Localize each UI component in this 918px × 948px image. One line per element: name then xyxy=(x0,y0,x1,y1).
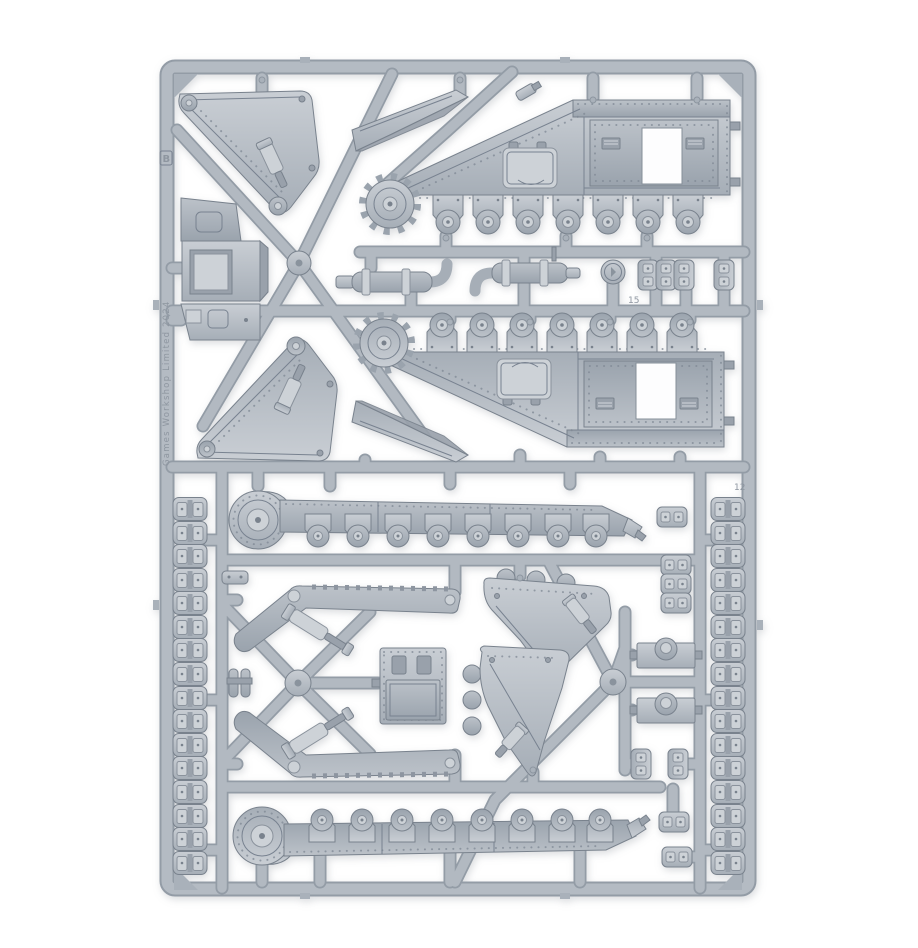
copyright-embossed: Games Workshop Limited 2024 xyxy=(162,300,172,466)
track-link-small xyxy=(656,260,676,290)
track-link-small xyxy=(714,260,734,290)
frame-letter: B xyxy=(163,154,171,165)
track-link-small xyxy=(659,812,689,832)
hull-section-box-lower xyxy=(181,304,260,340)
white-background xyxy=(0,0,918,948)
track-link-small xyxy=(674,260,694,290)
track-link-small xyxy=(661,574,691,594)
runner-number: 15 xyxy=(628,296,639,306)
track-link-small xyxy=(661,593,691,613)
small-bracket xyxy=(222,571,248,584)
track-link-small xyxy=(661,555,691,575)
track-link-small xyxy=(668,749,688,779)
sprue-photo: B Games Workshop Limited 2024 15 12 xyxy=(0,0,918,948)
track-link-small xyxy=(631,749,651,779)
frame-number: 12 xyxy=(734,483,745,493)
hatch-panel xyxy=(372,648,446,724)
mounting-plate xyxy=(630,693,702,723)
track-link-small xyxy=(657,507,687,527)
track-link-small xyxy=(662,847,692,867)
track-link-small xyxy=(638,260,658,290)
mounting-plate xyxy=(630,638,702,668)
product-photo: B Games Workshop Limited 2024 15 12 xyxy=(0,0,918,948)
hatch-disc xyxy=(601,260,625,284)
